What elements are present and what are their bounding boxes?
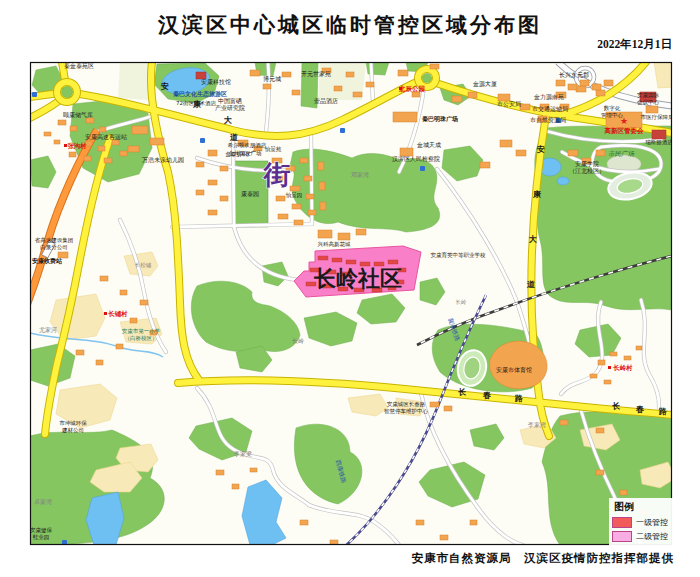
map-label: 秦金泰苑区 (64, 62, 94, 70)
map-label: 春 (635, 405, 644, 414)
map-label: 市交通运输局 (532, 105, 568, 113)
map-label: 建材公司 (61, 427, 84, 434)
map-label: 安 (536, 144, 545, 154)
map-label: 李家梁 (233, 450, 252, 457)
map-label: 道 (229, 133, 239, 142)
legend-title: 图例 (614, 500, 674, 514)
map-legend: 图例 一级管控 二级管控 (609, 498, 677, 546)
map-label: 市坤城环保 (59, 420, 87, 426)
map-label: 瑞斯丽酒店 (645, 139, 673, 146)
map-label: 壹品酒店 (314, 97, 338, 105)
map-label: 兴科高新花城 (318, 241, 352, 248)
map-label: （江北校区） (569, 167, 605, 175)
map-label: 路 (658, 407, 667, 416)
map-label: 市医疗保障局 (641, 114, 675, 121)
map-label: 大 (529, 235, 537, 244)
map-label: 康 (532, 190, 542, 199)
map-label: 道 (526, 280, 536, 289)
map-label: 长 (458, 388, 467, 397)
map-label: 街 (263, 159, 291, 190)
map-label: （白桥校区） (125, 335, 158, 342)
map-label: 邓家湾 (351, 171, 369, 179)
map-label: 省高速建设集团 (34, 237, 74, 244)
map-label: 大 (224, 116, 232, 125)
map-label: 李家湾 (527, 421, 546, 429)
map-label: 产业研究院 (215, 104, 245, 112)
map-label: 市自然资源局 (530, 116, 566, 124)
map-label: 安康科技馆 (201, 78, 231, 86)
map-label: 康 (192, 100, 202, 109)
map-label: 颐康储气库 (63, 111, 93, 119)
page: 汉滨区中心城区临时管控区域分布图 2022年12月1日 (0, 0, 700, 577)
legend-swatch-level1 (612, 517, 632, 528)
map-label: 白泉分公司 (40, 244, 68, 251)
map-label: 长岭 (456, 299, 468, 305)
map-canvas[interactable]: 秦金泰苑区安康科技馆秦巴文化生态旅游区72街区艺术酒店中国富硒产业研究院颐康储气… (0, 0, 700, 577)
map-label: 高新区管委会 (605, 127, 645, 135)
map-label: 安康城区长春路 (387, 401, 426, 407)
legend-item-level2: 二级管控 (612, 531, 674, 542)
map-label: 会议中心 (637, 99, 660, 105)
map-label: 安康市体育馆 (496, 366, 532, 374)
map-label: 康泰园 (241, 190, 259, 198)
map-label: 安康国际 (637, 92, 660, 99)
map-label: 安康收费站 (32, 257, 63, 265)
map-label: 鞋业园 (33, 534, 50, 541)
map-label: 怡景园 (286, 192, 303, 199)
map-label: 卓家湾 (34, 498, 52, 506)
map-label: 安康市第一小学 (122, 328, 161, 334)
map-label: 开元世家苑 (301, 70, 331, 78)
map-label: 金州国发广场 (229, 150, 262, 157)
map-label: 市公安局 (497, 100, 521, 108)
map-label: 万浩来亲幼儿园 (142, 156, 184, 164)
map-label: 金源大厦 (472, 80, 497, 88)
map-label: 长松铺 (135, 262, 152, 268)
map-label: ★ (620, 116, 628, 126)
map-label: 数字化 (604, 105, 621, 112)
map-label: 长岭村 (612, 364, 633, 372)
map-label: 尤家河 (39, 326, 57, 334)
legend-label-level1: 一级管控 (636, 517, 668, 528)
map-label: 长兴东元郡 (559, 71, 589, 79)
map-label: 长铺村 (107, 310, 128, 318)
map-label: 长 (612, 402, 621, 411)
map-label: 希尔顿欢朋酒店 (228, 142, 267, 149)
legend-label-level2: 二级管控 (636, 531, 668, 542)
map-label: 张沟村 (67, 142, 87, 150)
map-label: 安 (160, 81, 169, 91)
map-label: 安康育英中等职业学校 (431, 252, 487, 259)
map-label: 安康高速客运站 (85, 133, 127, 141)
map-label: 长岭 (292, 337, 304, 344)
credit-line: 安康市自然资源局 汉滨区疫情防控指挥部提供 (412, 551, 675, 566)
map-label: 安康健保 (30, 527, 53, 534)
map-label: 金城天成 (416, 141, 441, 148)
map-label: 春 (482, 391, 491, 400)
map-label: 路 (514, 394, 523, 403)
legend-swatch-level2 (612, 531, 632, 542)
map-label: 汉滨区人民检察院 (392, 155, 440, 163)
map-label: 博元城 (263, 75, 281, 83)
map-label: 市民广场 (608, 150, 635, 158)
legend-item-level1: 一级管控 (612, 517, 674, 528)
map-label: 北辰公园 (398, 85, 425, 93)
map-label: 秦巴明珠广场 (422, 115, 458, 123)
map-label: 智慧停车维护中心 (384, 408, 429, 415)
map-label: 怡景苑 (265, 146, 282, 153)
map-label: 长岭社区 (313, 266, 402, 291)
map-label: 金力源南苑 (533, 93, 564, 101)
